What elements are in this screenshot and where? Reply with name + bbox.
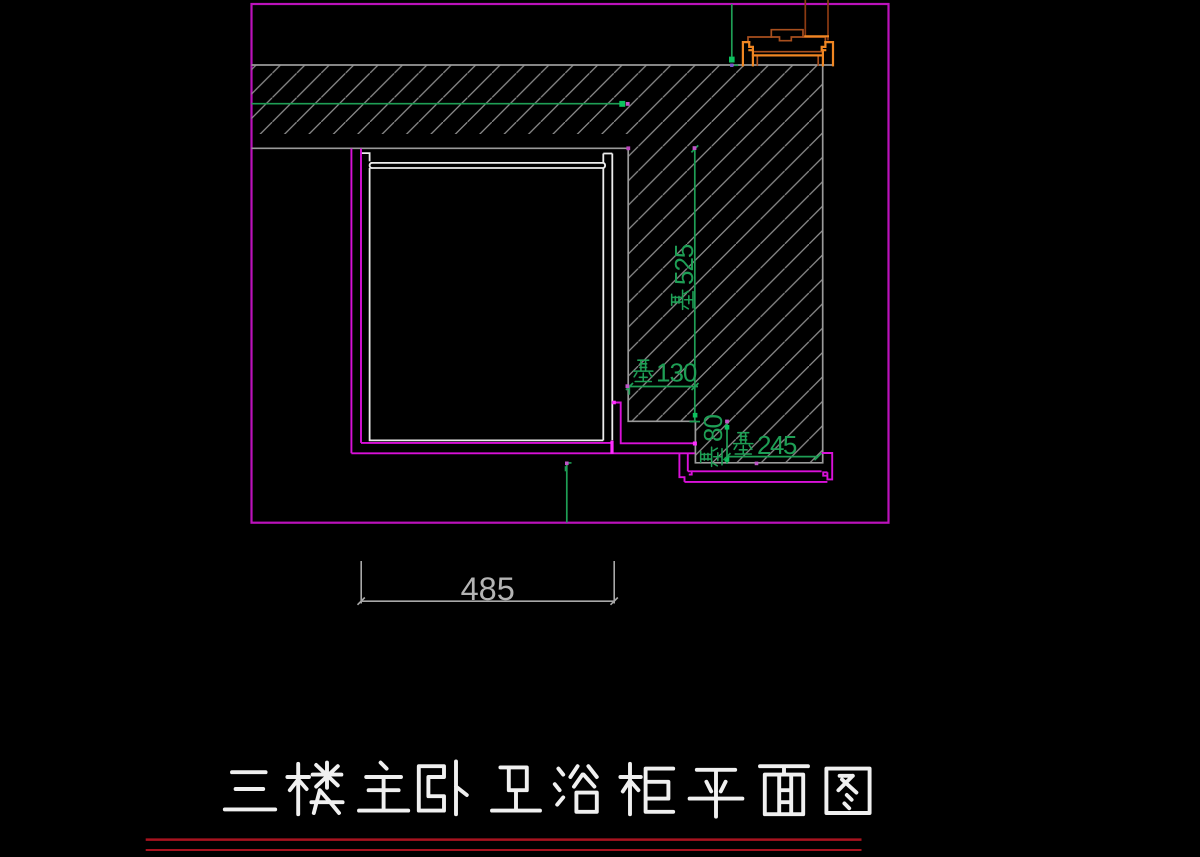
- svg-text:245: 245: [757, 430, 797, 460]
- svg-text:130: 130: [656, 358, 697, 388]
- svg-text:80: 80: [698, 415, 728, 442]
- svg-text:525: 525: [669, 244, 699, 285]
- svg-text:485: 485: [461, 571, 515, 607]
